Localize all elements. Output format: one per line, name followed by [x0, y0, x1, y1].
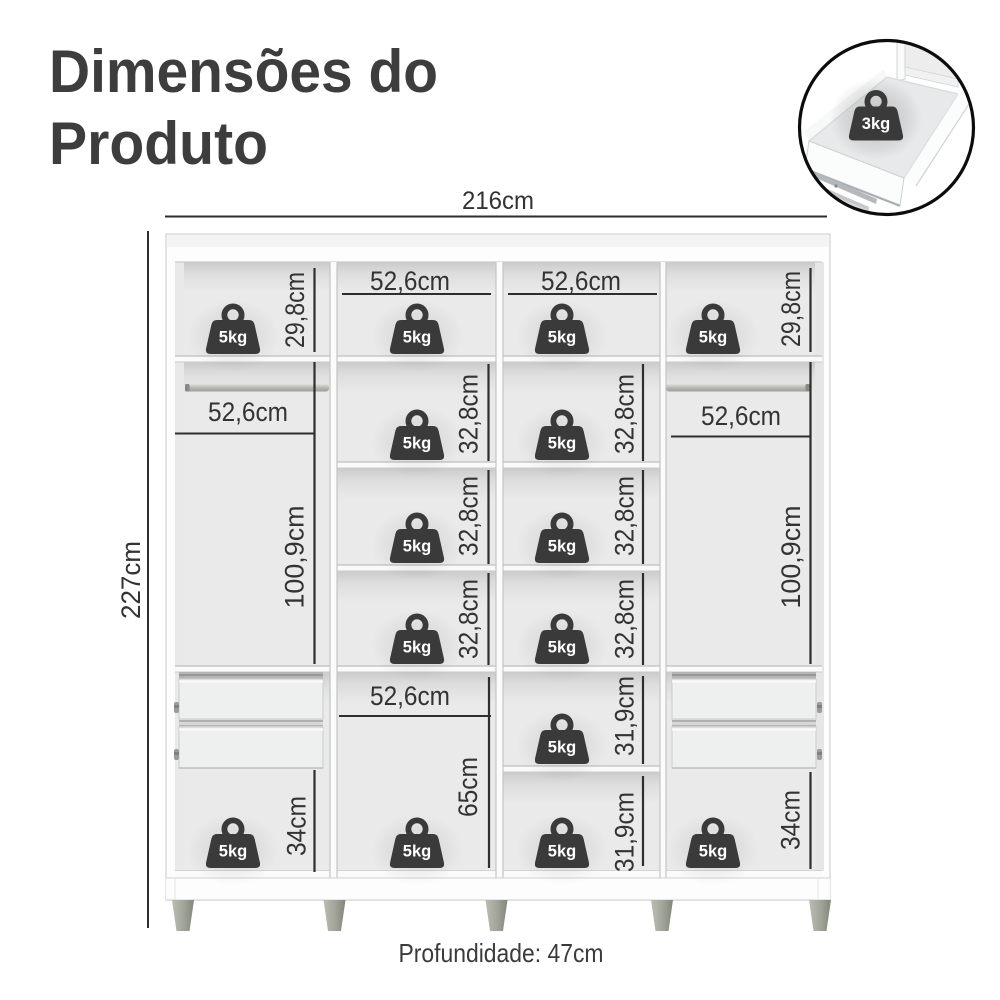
svg-text:52,6cm: 52,6cm [208, 397, 288, 427]
svg-text:31,9cm: 31,9cm [610, 792, 640, 872]
svg-text:5kg: 5kg [403, 538, 431, 556]
svg-text:3kg: 3kg [862, 115, 890, 133]
svg-text:32,8cm: 32,8cm [609, 374, 639, 454]
svg-text:5kg: 5kg [548, 329, 576, 347]
svg-text:216cm: 216cm [462, 187, 534, 215]
svg-text:5kg: 5kg [548, 739, 576, 757]
svg-text:Dimensões do: Dimensões do [49, 38, 438, 105]
svg-text:5kg: 5kg [548, 843, 576, 861]
svg-text:5kg: 5kg [699, 329, 727, 347]
svg-text:31,9cm: 31,9cm [610, 676, 640, 756]
svg-text:5kg: 5kg [403, 843, 431, 861]
svg-text:5kg: 5kg [548, 435, 576, 453]
svg-text:52,6cm: 52,6cm [701, 401, 781, 431]
svg-text:Profundidade: 47cm: Profundidade: 47cm [399, 938, 604, 968]
svg-text:29,8cm: 29,8cm [280, 272, 310, 348]
svg-text:52,6cm: 52,6cm [541, 266, 621, 296]
svg-text:227cm: 227cm [116, 541, 146, 619]
svg-text:5kg: 5kg [548, 538, 576, 556]
svg-text:29,8cm: 29,8cm [776, 271, 806, 347]
svg-text:5kg: 5kg [403, 639, 431, 657]
svg-text:100,9cm: 100,9cm [776, 506, 806, 609]
svg-text:34cm: 34cm [776, 790, 806, 850]
svg-text:5kg: 5kg [548, 639, 576, 657]
svg-text:5kg: 5kg [699, 843, 727, 861]
svg-text:100,9cm: 100,9cm [280, 506, 310, 609]
svg-text:5kg: 5kg [403, 329, 431, 347]
svg-text:5kg: 5kg [219, 329, 247, 347]
svg-text:52,6cm: 52,6cm [370, 266, 450, 296]
svg-text:65cm: 65cm [453, 757, 483, 817]
svg-text:Produto: Produto [49, 110, 268, 177]
svg-text:32,8cm: 32,8cm [609, 476, 639, 556]
svg-text:5kg: 5kg [219, 843, 247, 861]
svg-text:5kg: 5kg [403, 435, 431, 453]
svg-text:52,6cm: 52,6cm [370, 681, 450, 711]
svg-text:34cm: 34cm [282, 796, 312, 856]
svg-text:32,8cm: 32,8cm [609, 579, 639, 659]
